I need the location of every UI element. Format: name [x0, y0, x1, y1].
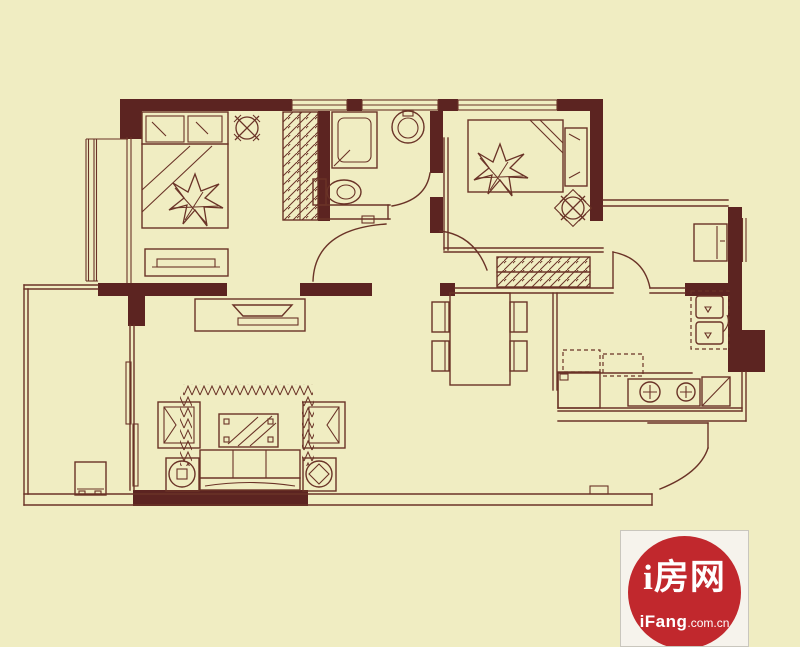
- balcony: [75, 462, 106, 495]
- washbasin-icon: [392, 110, 424, 143]
- ceiling-lamp-icon: [234, 115, 260, 141]
- pillow-icon: [188, 116, 222, 142]
- balcony-cabinet-icon: [75, 462, 106, 495]
- dining-table-icon: [450, 293, 510, 385]
- window-symbols: [86, 100, 746, 283]
- shower-icon: [332, 112, 377, 168]
- bay-window: [86, 137, 131, 283]
- single-bed-icon: [468, 120, 587, 196]
- dresser-icon: [145, 249, 228, 276]
- pillow-icon: [565, 128, 587, 186]
- dining-area: [432, 293, 527, 385]
- armchair-icon: [158, 402, 200, 448]
- bedroom-1: [142, 112, 318, 276]
- fridge-icon: [694, 224, 727, 261]
- pillow-icon: [146, 116, 184, 142]
- dining-chair-icon: [510, 341, 527, 371]
- closet-hatch-icon: [497, 257, 590, 287]
- ifang-brand-text: i房网: [628, 559, 741, 597]
- ifang-domain-suffix: .com.cn: [687, 616, 729, 630]
- door-swing-arc: [613, 252, 650, 288]
- ifang-domain-bold: iFang: [640, 612, 688, 631]
- dining-chair-icon: [432, 302, 449, 332]
- window-symbol: [743, 218, 747, 262]
- kitchen-sink-icon: [691, 291, 729, 349]
- flower-decor-icon: [169, 174, 223, 226]
- sofa-icon: [200, 450, 300, 490]
- armchair-icon: [303, 402, 345, 448]
- coffee-table-icon: [219, 414, 278, 447]
- sliding-door-icon: [126, 325, 138, 490]
- stove-icon: [628, 379, 700, 406]
- window-symbol: [292, 100, 347, 110]
- corner-cabinet-icon: [702, 377, 730, 406]
- door-swing-arc: [313, 224, 386, 281]
- ifang-logo-circle-icon: i房网 iFang.com.cn: [628, 536, 741, 647]
- window-symbol: [458, 100, 557, 110]
- living-room: [158, 299, 345, 491]
- dining-chair-icon: [432, 341, 449, 371]
- ceiling-lamp-icon: [555, 190, 592, 227]
- double-bed-icon: [142, 112, 228, 228]
- ifang-watermark: i房网 iFang.com.cn: [620, 530, 749, 647]
- door-swing-arc: [392, 173, 430, 206]
- ifang-domain-text: iFang.com.cn: [628, 612, 741, 632]
- door-swing-arc: [440, 231, 487, 270]
- flower-decor-icon: [474, 144, 528, 196]
- window-symbol: [362, 100, 438, 110]
- tv-cabinet-icon: [195, 299, 305, 331]
- bedroom-2: [468, 120, 591, 226]
- dining-chair-icon: [510, 302, 527, 332]
